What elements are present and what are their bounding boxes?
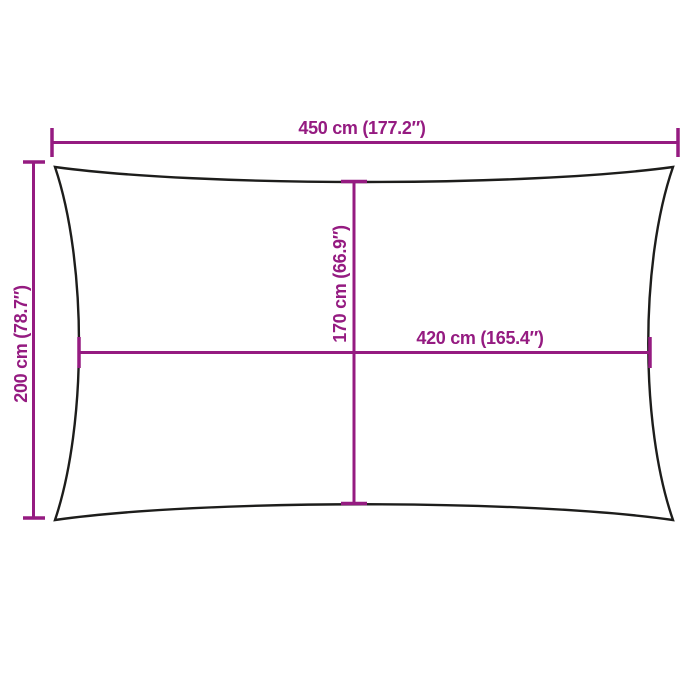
left-dimension: 200 cm (78.7″): [11, 162, 45, 518]
dimension-diagram: 450 cm (177.2″) 200 cm (78.7″) 170 cm (6…: [0, 0, 700, 700]
center-horizontal-dimension: 420 cm (165.4″): [79, 328, 650, 368]
center-vertical-dimension-label: 170 cm (66.9″): [330, 225, 350, 343]
top-dimension: 450 cm (177.2″): [52, 118, 678, 157]
center-vertical-dimension: 170 cm (66.9″): [330, 182, 367, 504]
top-dimension-label: 450 cm (177.2″): [298, 118, 426, 138]
sail-outline: [55, 167, 673, 520]
diagram-canvas: 450 cm (177.2″) 200 cm (78.7″) 170 cm (6…: [0, 0, 700, 700]
left-dimension-label: 200 cm (78.7″): [11, 285, 31, 403]
center-horizontal-dimension-label: 420 cm (165.4″): [416, 328, 544, 348]
